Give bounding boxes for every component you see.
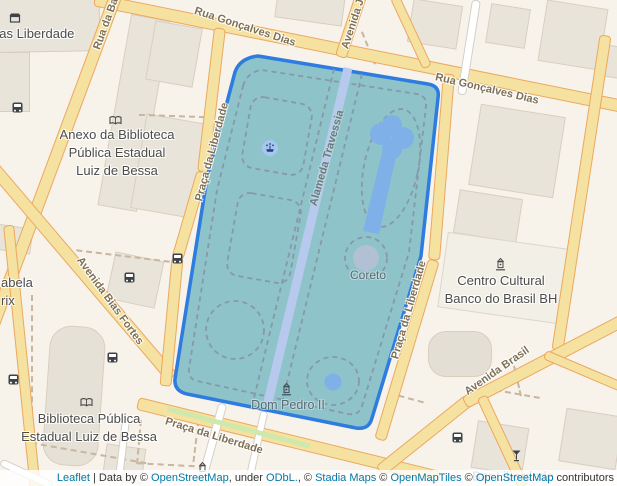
poi-label-line: Estadual Luiz de Bessa xyxy=(21,428,157,446)
openstreetmap-link[interactable]: OpenStreetMap xyxy=(476,472,554,484)
bar-glass-icon xyxy=(512,449,521,467)
bus-icon xyxy=(107,350,118,368)
poi-label-line: Banco do Brasil BH xyxy=(445,290,558,308)
poi-label-nas-liberdade: nas Liberdade xyxy=(0,26,74,41)
attribution-text: , © xyxy=(298,472,315,484)
bus-icon xyxy=(8,372,19,390)
attribution-text: contributors xyxy=(553,472,614,484)
odbl-link[interactable]: ODbL. xyxy=(266,472,298,484)
poi-label-ccbb: Centro Cultural Banco do Brasil BH xyxy=(445,272,558,308)
poi-label-line: Luiz de Bessa xyxy=(60,162,175,180)
attribution-text: | Data by xyxy=(90,472,140,484)
attribution-bar: Leaflet | Data by © OpenStreetMap, under… xyxy=(0,470,617,486)
leaflet-link[interactable]: Leaflet xyxy=(57,472,90,484)
bus-icon xyxy=(12,100,23,118)
poi-label-line: Anexo da Biblioteca xyxy=(60,126,175,144)
attribution-text: © xyxy=(376,472,390,484)
fountain-icon xyxy=(262,140,278,156)
attribution-text: © xyxy=(140,472,151,484)
poi-label-line: Centro Cultural xyxy=(445,272,558,290)
poi-label-coreto: Coreto xyxy=(350,268,386,282)
bus-icon xyxy=(452,430,463,448)
poi-label-abela: abela xyxy=(1,275,33,290)
openmaptiles-link[interactable]: OpenMapTiles xyxy=(390,472,461,484)
poi-label-line: Pública Estadual xyxy=(60,144,175,162)
bus-icon xyxy=(124,270,135,288)
small-pond xyxy=(325,374,342,391)
bus-icon xyxy=(172,251,183,269)
poi-label-line: Biblioteca Pública xyxy=(21,410,157,428)
stadia-maps-link[interactable]: Stadia Maps xyxy=(315,472,376,484)
attribution-text: , under xyxy=(229,472,266,484)
openstreetmap-link[interactable]: OpenStreetMap xyxy=(151,472,229,484)
poi-label-anexo-biblioteca: Anexo da Biblioteca Pública Estadual Lui… xyxy=(60,126,175,180)
poi-label-biblioteca: Biblioteca Pública Estadual Luiz de Bess… xyxy=(21,410,157,446)
attribution-text: © xyxy=(462,472,476,484)
poi-label-rix: rix xyxy=(1,293,15,308)
map-canvas[interactable]: Rua Gonçalves Dias Rua Gonçalves Dias Ru… xyxy=(0,0,617,486)
poi-label-dom-pedro: Dom Pedro II xyxy=(251,398,325,412)
